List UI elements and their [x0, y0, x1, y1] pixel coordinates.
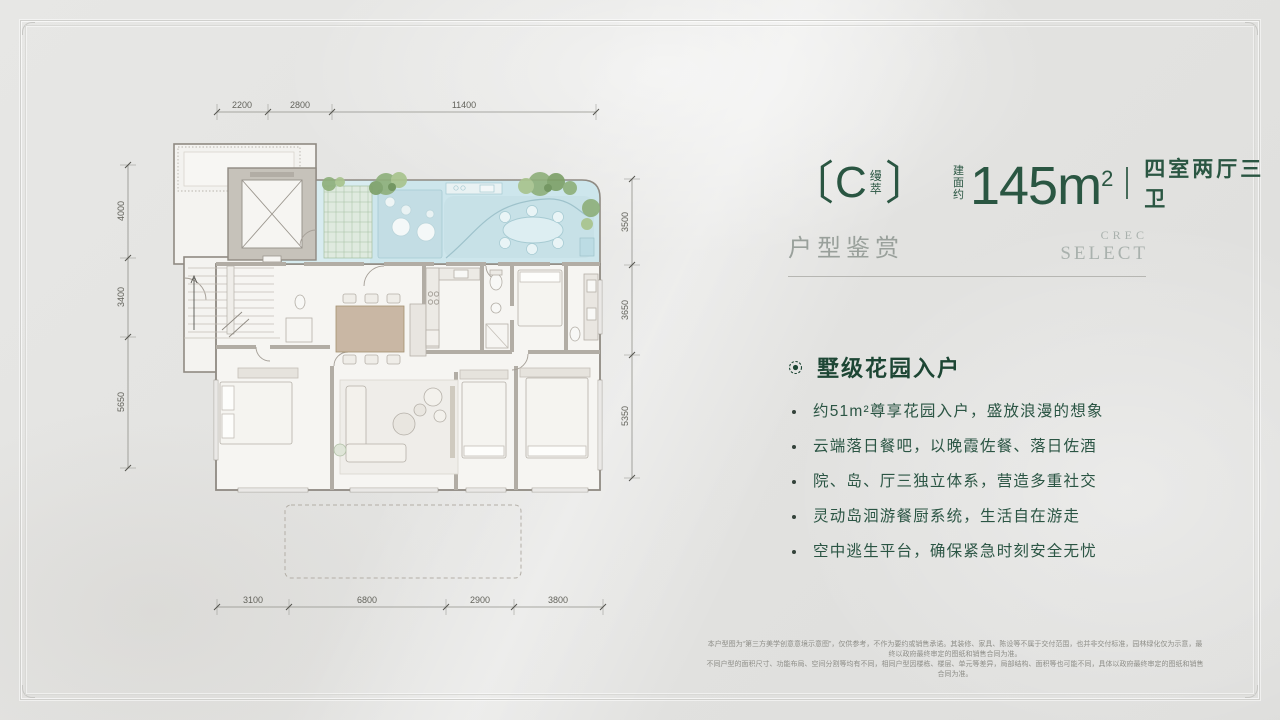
bracket-open: 〔 — [788, 155, 834, 211]
frame-corner-icon — [22, 22, 35, 35]
list-item: 空中逃生平台，确保紧急时刻安全无忧 — [792, 544, 1192, 560]
terrace-dashed-outline — [285, 505, 521, 578]
dim-label: 3650 — [620, 300, 630, 320]
horizontal-divider — [788, 276, 1146, 277]
room-layout-label: 四室两厅三卫 — [1144, 153, 1280, 213]
disclaimer-line2: 不同户型的面积尺寸、功能布局、空间分割等均有不同，相同户型因楼栋、楼层、单元等差… — [705, 660, 1205, 680]
list-item: 灵动岛洄游餐厨系统，生活自在游走 — [792, 509, 1192, 525]
area-exponent: 2 — [1101, 166, 1112, 191]
elevator-icon — [228, 168, 316, 262]
dim-label: 3500 — [620, 212, 630, 232]
target-bullet-icon — [788, 360, 803, 375]
sofa-icon — [334, 380, 458, 474]
floor-plan: 2200 2800 11400 4000 3400 5650 3500 3650… — [88, 80, 688, 630]
dim-label: 4000 — [116, 201, 126, 221]
area-group: 建面约 145m2 — [953, 152, 1112, 213]
dim-label: 11400 — [452, 100, 476, 110]
floorplan-structure — [174, 144, 602, 578]
section-title: 户型鉴赏 — [788, 228, 904, 263]
dim-label: 6800 — [357, 595, 377, 605]
bracket-close: 〕 — [885, 155, 931, 211]
feature-text: 院、岛、厅三独立体系，营造多重社交 — [813, 474, 1097, 490]
dim-label: 3800 — [548, 595, 568, 605]
brand-logo: CREC SELECT — [1060, 229, 1148, 263]
dim-label: 3400 — [116, 287, 126, 307]
frame-corner-icon — [22, 685, 35, 698]
feature-heading: 墅级花园入户 — [788, 351, 961, 383]
unit-name: 缦萃 — [870, 170, 883, 196]
frame-corner-icon — [1245, 22, 1258, 35]
feature-text: 空中逃生平台，确保紧急时刻安全无忧 — [813, 544, 1097, 560]
vertical-divider — [1126, 167, 1128, 199]
dim-label: 2800 — [290, 100, 310, 110]
unit-header: 〔 C 缦萃 〕 建面约 145m2 四室两厅三卫 — [788, 152, 1280, 213]
brand-line2: SELECT — [1060, 244, 1148, 263]
area-value: 145m2 — [970, 152, 1112, 213]
feature-text: 云端落日餐吧，以晚霞佐餐、落日佐酒 — [813, 439, 1097, 455]
feature-text: 灵动岛洄游餐厨系统，生活自在游走 — [813, 509, 1080, 525]
feature-text: 约51m²尊享花园入户，盛放浪漫的想象 — [813, 404, 1104, 420]
list-item: 云端落日餐吧，以晚霞佐餐、落日佐酒 — [792, 439, 1192, 455]
frame-corner-icon — [1245, 685, 1258, 698]
disclaimer: 本户型图为“第三方美学创意意境示意图”，仅供参考，不作为要约或销售承诺。其装修、… — [705, 640, 1205, 680]
list-item: 约51m²尊享花园入户，盛放浪漫的想象 — [792, 404, 1192, 420]
list-item: 院、岛、厅三独立体系，营造多重社交 — [792, 474, 1192, 490]
dim-label: 5650 — [116, 392, 126, 412]
area-prefix: 建面约 — [953, 165, 966, 201]
bullet-dot-icon — [792, 445, 796, 449]
kitchen-island-icon — [410, 304, 426, 356]
brand-line1: CREC — [1060, 229, 1148, 241]
bullet-dot-icon — [792, 515, 796, 519]
garden-dining-table-icon — [500, 206, 564, 255]
bullet-dot-icon — [792, 480, 796, 484]
dim-label: 2900 — [470, 595, 490, 605]
feature-list: 约51m²尊享花园入户，盛放浪漫的想象 云端落日餐吧，以晚霞佐餐、落日佐酒 院、… — [792, 404, 1192, 579]
dim-label: 3100 — [243, 595, 263, 605]
disclaimer-line1: 本户型图为“第三方美学创意意境示意图”，仅供参考，不作为要约或销售承诺。其装修、… — [705, 640, 1205, 660]
bullet-dot-icon — [792, 410, 796, 414]
feature-heading-text: 墅级花园入户 — [817, 351, 961, 383]
bullet-dot-icon — [792, 550, 796, 554]
dim-label: 5350 — [620, 406, 630, 426]
section-row: 户型鉴赏 CREC SELECT — [788, 228, 1148, 263]
dim-label: 2200 — [232, 100, 252, 110]
unit-letter: C — [835, 157, 867, 209]
garden-area — [281, 172, 600, 264]
